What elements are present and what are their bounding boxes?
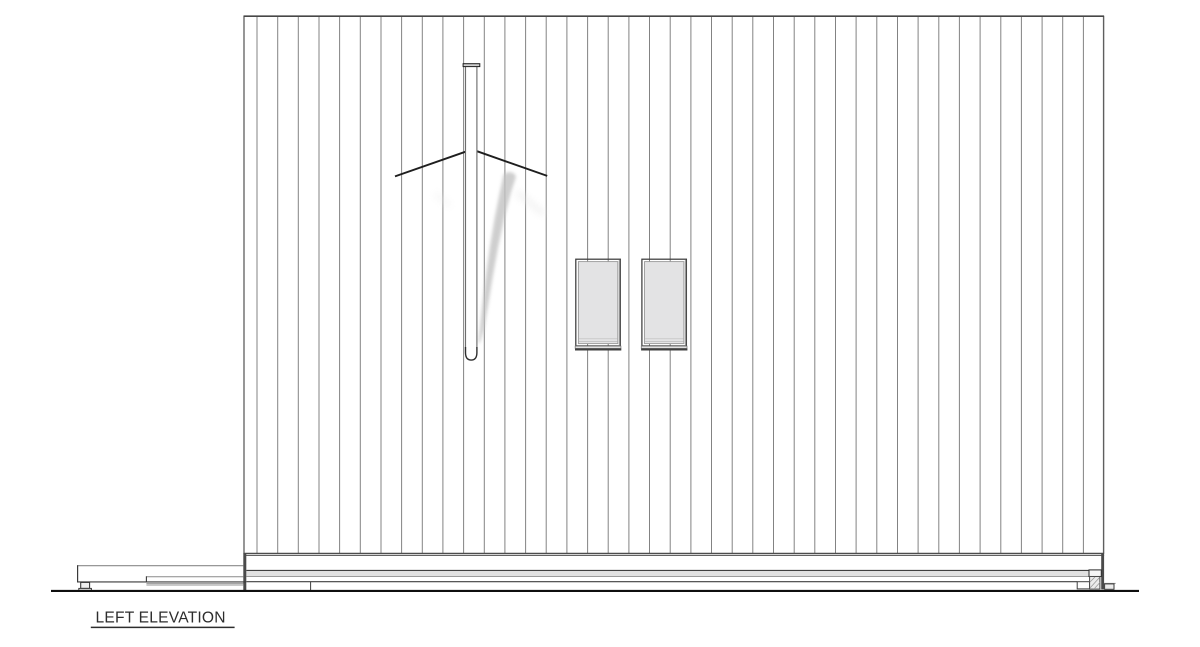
svg-text:LEFT ELEVATION: LEFT ELEVATION: [96, 609, 226, 626]
